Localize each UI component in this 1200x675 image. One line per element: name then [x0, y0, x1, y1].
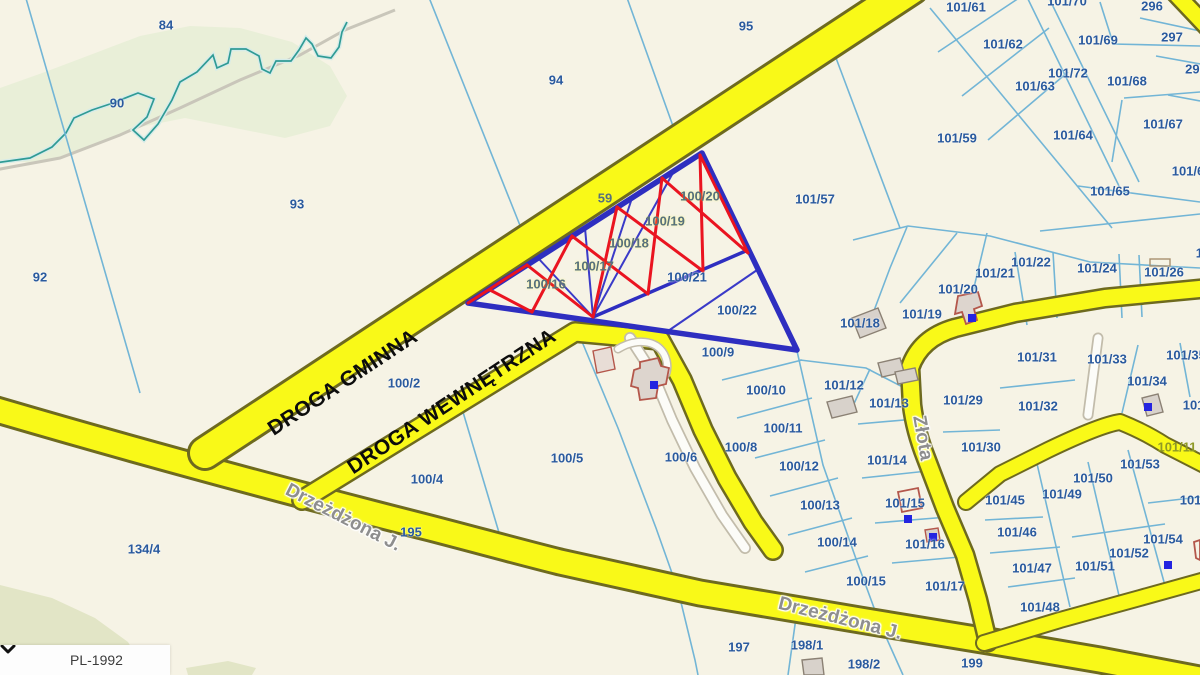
parcel-label-100/14: 100/14: [817, 535, 857, 550]
parcel-label-101/17: 101/17: [925, 579, 965, 594]
parcel-label-101/29: 101/29: [943, 393, 983, 408]
parcel-label-100/12: 100/12: [779, 459, 819, 474]
parcel-label-101/65: 101/65: [1090, 184, 1130, 199]
parcel-label-100/19: 100/19: [645, 214, 685, 229]
crs-selector-value: PL-1992: [70, 652, 123, 668]
building-footprint: [802, 658, 824, 675]
parcel-label-92: 92: [33, 270, 47, 285]
parcel-label-198/1: 198/1: [791, 638, 824, 653]
parcel-label-101/18: 101/18: [840, 316, 880, 331]
parcel-label-100/13: 100/13: [800, 498, 840, 513]
parcel-label-93: 93: [290, 197, 304, 212]
parcel-label-101/67: 101/67: [1143, 117, 1183, 132]
parcel-label-101/16: 101/16: [905, 537, 945, 552]
parcel-label-100/9: 100/9: [702, 345, 735, 360]
parcel-label-101/47: 101/47: [1012, 561, 1052, 576]
parcel-label-100/16: 100/16: [526, 277, 566, 292]
parcel-label-101/54: 101/54: [1143, 532, 1183, 547]
parcel-label-101/14: 101/14: [867, 453, 907, 468]
parcel-label-59: 59: [598, 191, 612, 206]
parcel-label-101/21: 101/21: [975, 266, 1015, 281]
parcel-label-94: 94: [549, 73, 563, 88]
parcel-label-296: 296: [1141, 0, 1163, 14]
parcel-label-101/11: 101/11: [1157, 440, 1196, 455]
parcel-label-100/6: 100/6: [665, 450, 698, 465]
parcel-label-101/15: 101/15: [885, 496, 925, 511]
parcel-label-101/62: 101/62: [983, 37, 1023, 52]
parcel-label-101/35: 101/35: [1166, 348, 1200, 363]
parcel-label-10: 10: [1196, 246, 1200, 261]
parcel-label-101/64: 101/64: [1053, 128, 1093, 143]
parcel-label-101/12: 101/12: [824, 378, 864, 393]
parcel-label-100/20: 100/20: [680, 189, 720, 204]
parcel-label-297: 297: [1161, 30, 1183, 45]
building-footprint: [1194, 540, 1200, 560]
parcel-label-101/61: 101/61: [946, 0, 986, 15]
parcel-label-298: 298: [1185, 62, 1200, 77]
parcel-label-134/4: 134/4: [128, 542, 161, 557]
parcel-label-101/5: 101/5: [1180, 493, 1200, 508]
parcel-label-100/17: 100/17: [574, 259, 614, 274]
parcel-label-101/32: 101/32: [1018, 399, 1058, 414]
parcel-label-101/68: 101/68: [1107, 74, 1147, 89]
map-canvas[interactable]: 84909293949559100/20100/19100/18100/1710…: [0, 0, 1200, 675]
parcel-label-101/31: 101/31: [1017, 350, 1057, 365]
parcel-label-101/22: 101/22: [1011, 255, 1051, 270]
parcel-label-199: 199: [961, 656, 983, 671]
parcel-label-101/26: 101/26: [1144, 265, 1184, 280]
parcel-label-101/6: 101/6: [1172, 164, 1200, 179]
parcel-label-101/46: 101/46: [997, 525, 1037, 540]
parcel-label-90: 90: [110, 96, 124, 111]
parcel-label-101/53: 101/53: [1120, 457, 1160, 472]
parcel-label-100/4: 100/4: [411, 472, 444, 487]
parcel-label-84: 84: [159, 18, 173, 33]
parcel-label-101/24: 101/24: [1077, 261, 1117, 276]
parcel-label-101/4: 101/4: [1183, 398, 1200, 413]
parcel-label-100/8: 100/8: [725, 440, 758, 455]
parcel-label-101/69: 101/69: [1078, 33, 1118, 48]
parcel-label-101/48: 101/48: [1020, 600, 1060, 615]
parcel-label-101/63: 101/63: [1015, 79, 1055, 94]
parcel-label-101/19: 101/19: [902, 307, 942, 322]
parcel-label-101/72: 101/72: [1048, 66, 1088, 81]
parcel-label-100/11: 100/11: [763, 421, 802, 436]
crs-selector[interactable]: PL-1992: [0, 645, 170, 675]
parcel-label-100/5: 100/5: [551, 451, 584, 466]
parcel-label-101/45: 101/45: [985, 493, 1025, 508]
parcel-label-198/2: 198/2: [848, 657, 881, 672]
parcel-label-101/70: 101/70: [1047, 0, 1087, 9]
parcel-label-100/21: 100/21: [667, 270, 707, 285]
parcel-label-101/34: 101/34: [1127, 374, 1167, 389]
parcel-label-101/49: 101/49: [1042, 487, 1082, 502]
parcel-label-101/51: 101/51: [1075, 559, 1115, 574]
parcel-label-100/10: 100/10: [746, 383, 786, 398]
building-footprint: [593, 347, 615, 373]
parcel-label-101/30: 101/30: [961, 440, 1001, 455]
parcel-label-101/57: 101/57: [795, 192, 835, 207]
building-footprint: [827, 396, 857, 418]
parcel-label-101/20: 101/20: [938, 282, 978, 297]
parcel-label-101/33: 101/33: [1087, 352, 1127, 367]
parcel-label-101/50: 101/50: [1073, 471, 1113, 486]
parcel-label-101/13: 101/13: [869, 396, 909, 411]
green-areas: [0, 26, 347, 675]
parcel-label-100/2: 100/2: [388, 376, 421, 391]
parcel-label-197: 197: [728, 640, 750, 655]
parcel-label-101/59: 101/59: [937, 131, 977, 146]
parcel-label-100/18: 100/18: [609, 236, 649, 251]
parcel-label-100/22: 100/22: [717, 303, 757, 318]
parcel-label-101/52: 101/52: [1109, 546, 1149, 561]
parcel-label-95: 95: [739, 19, 753, 34]
parcel-label-100/15: 100/15: [846, 574, 886, 589]
